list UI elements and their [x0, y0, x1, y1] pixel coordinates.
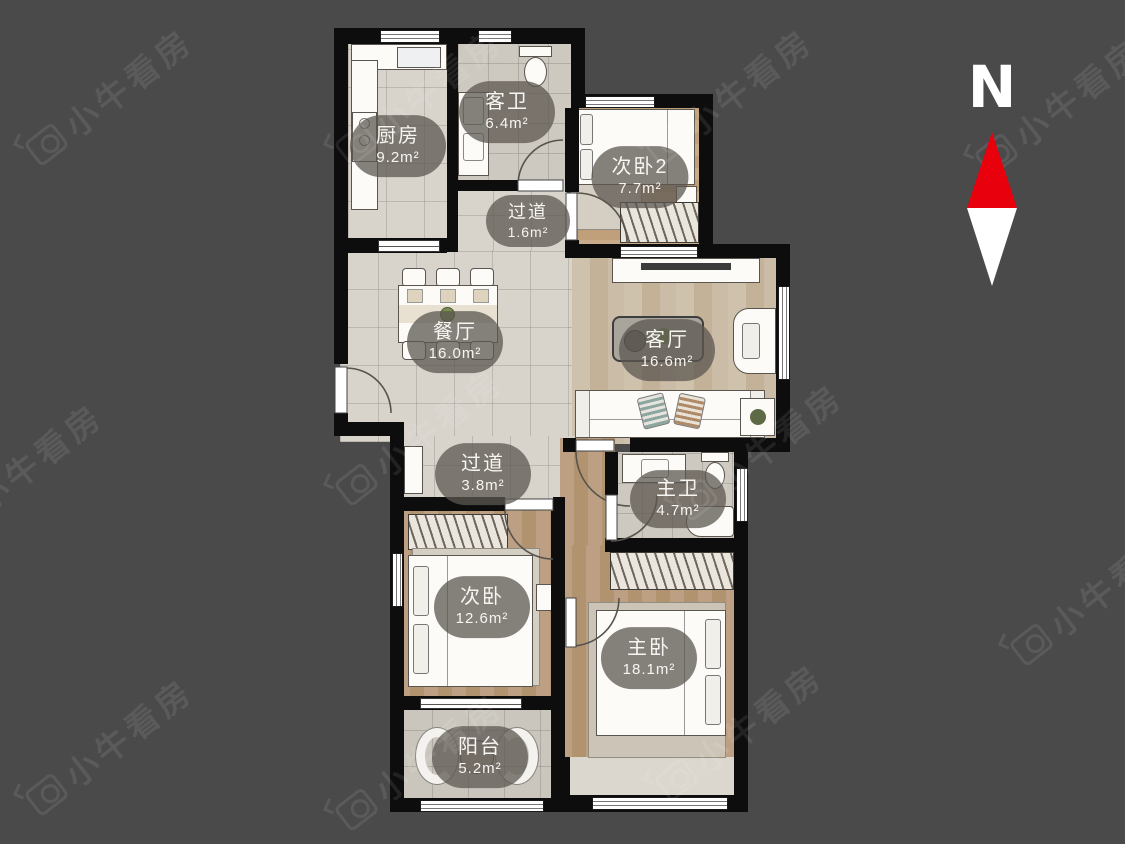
room-label-passage: 过道 3.8m² — [435, 443, 531, 505]
floorplan-canvas: 厨房 9.2m² 客卫 6.4m² 次卧2 7.7m² 过道 1.6m² 餐厅 … — [0, 0, 1125, 844]
room-label-dining: 餐厅 16.0m² — [407, 311, 503, 373]
compass: N — [947, 58, 1037, 286]
guest-bath-door-arc — [518, 140, 563, 185]
room-label-bedroom: 次卧 12.6m² — [434, 576, 530, 638]
compass-arrow-south — [967, 208, 1017, 286]
room-label-master-bedroom: 主卧 18.1m² — [601, 627, 697, 689]
entry-door-arc — [346, 368, 391, 413]
room-label-bedroom2: 次卧2 7.7m² — [591, 146, 688, 208]
room-label-guest-bathroom: 客卫 6.4m² — [459, 81, 555, 143]
entry-door-leaf — [335, 367, 347, 413]
corridor-door-arc — [576, 452, 630, 506]
room-label-living: 客厅 16.6m² — [619, 319, 715, 381]
master-bath-door-leaf — [606, 495, 617, 540]
master-door-leaf — [566, 598, 576, 647]
room-label-passage-small: 过道 1.6m² — [486, 195, 570, 247]
room-label-master-bathroom: 主卫 4.7m² — [630, 470, 726, 528]
room-label-balcony: 阳台 5.2m² — [432, 726, 528, 788]
compass-arrow-north — [967, 132, 1017, 208]
corridor-door-leaf — [576, 440, 614, 451]
room-label-kitchen: 厨房 9.2m² — [350, 115, 446, 177]
compass-north-label: N — [947, 58, 1037, 116]
guest-bath-door-leaf — [518, 180, 563, 191]
bedroom-door-arc — [505, 511, 553, 559]
